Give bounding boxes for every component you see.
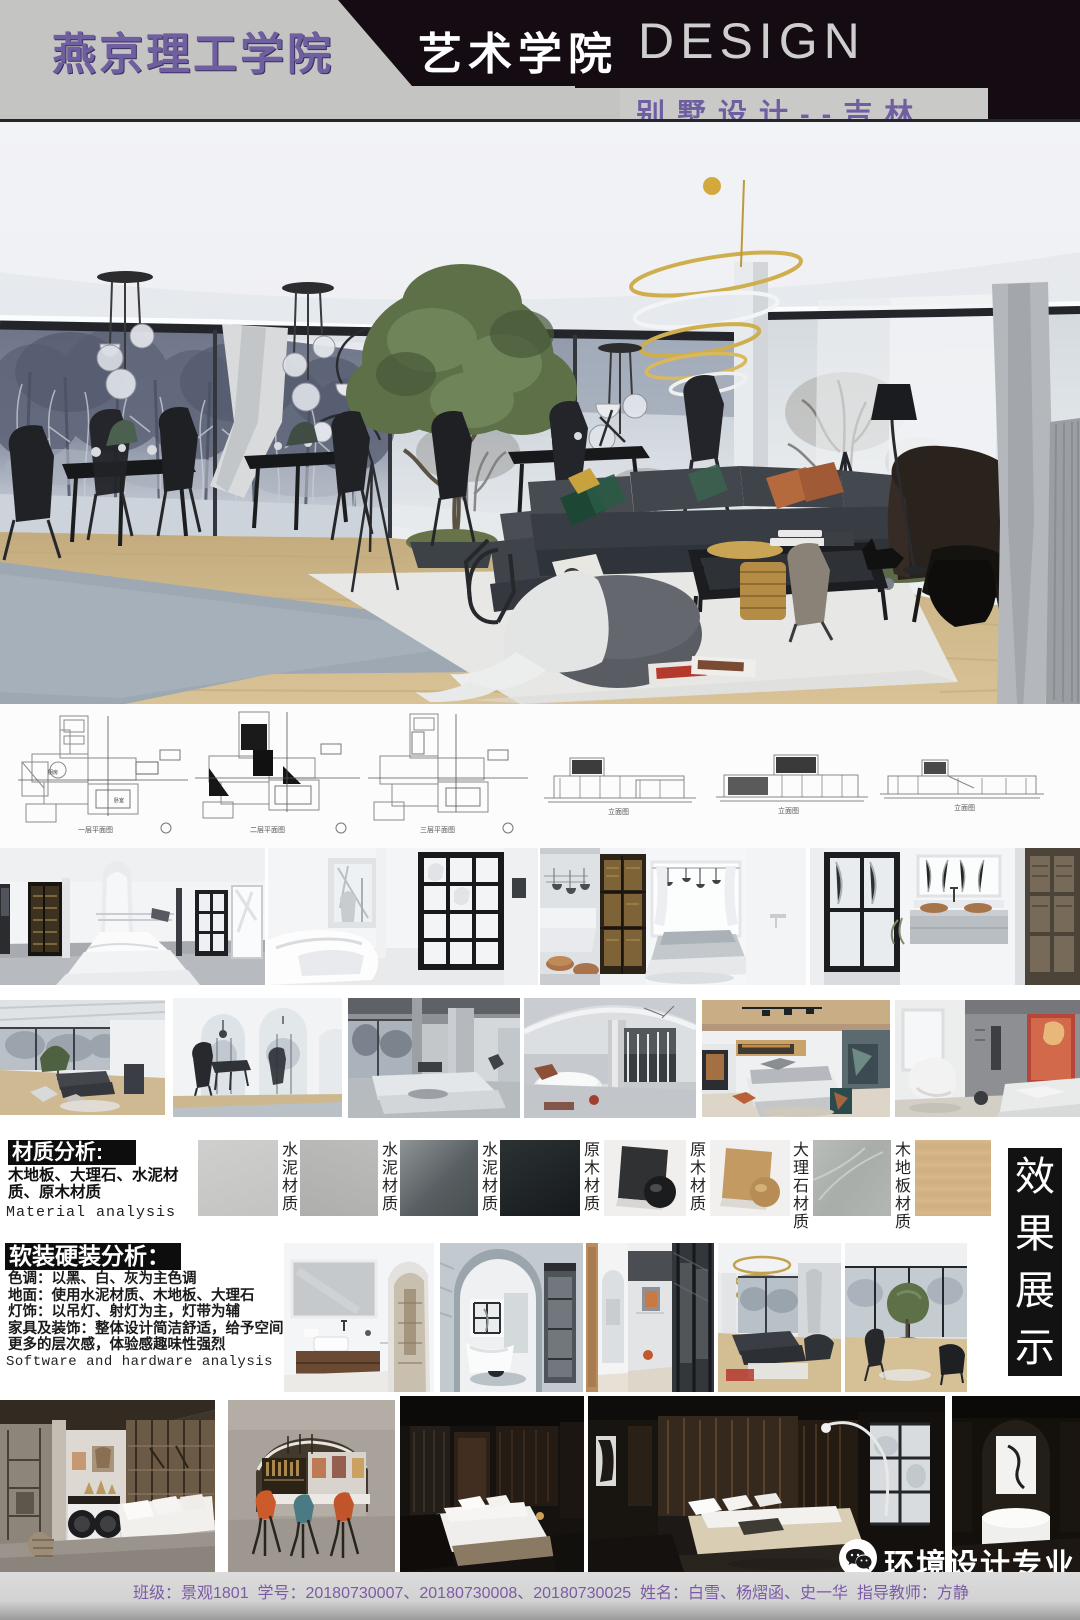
svg-text:厨房: 厨房 — [48, 769, 58, 776]
svg-text:一层平面图: 一层平面图 — [78, 826, 113, 834]
svg-text:立面图: 立面图 — [778, 806, 799, 815]
svg-text:卧室: 卧室 — [114, 797, 124, 804]
svg-text:立面图: 立面图 — [954, 803, 975, 812]
svg-text:立面图: 立面图 — [608, 807, 629, 816]
svg-text:二层平面图: 二层平面图 — [250, 826, 285, 834]
svg-text:三层平面图: 三层平面图 — [420, 826, 455, 834]
